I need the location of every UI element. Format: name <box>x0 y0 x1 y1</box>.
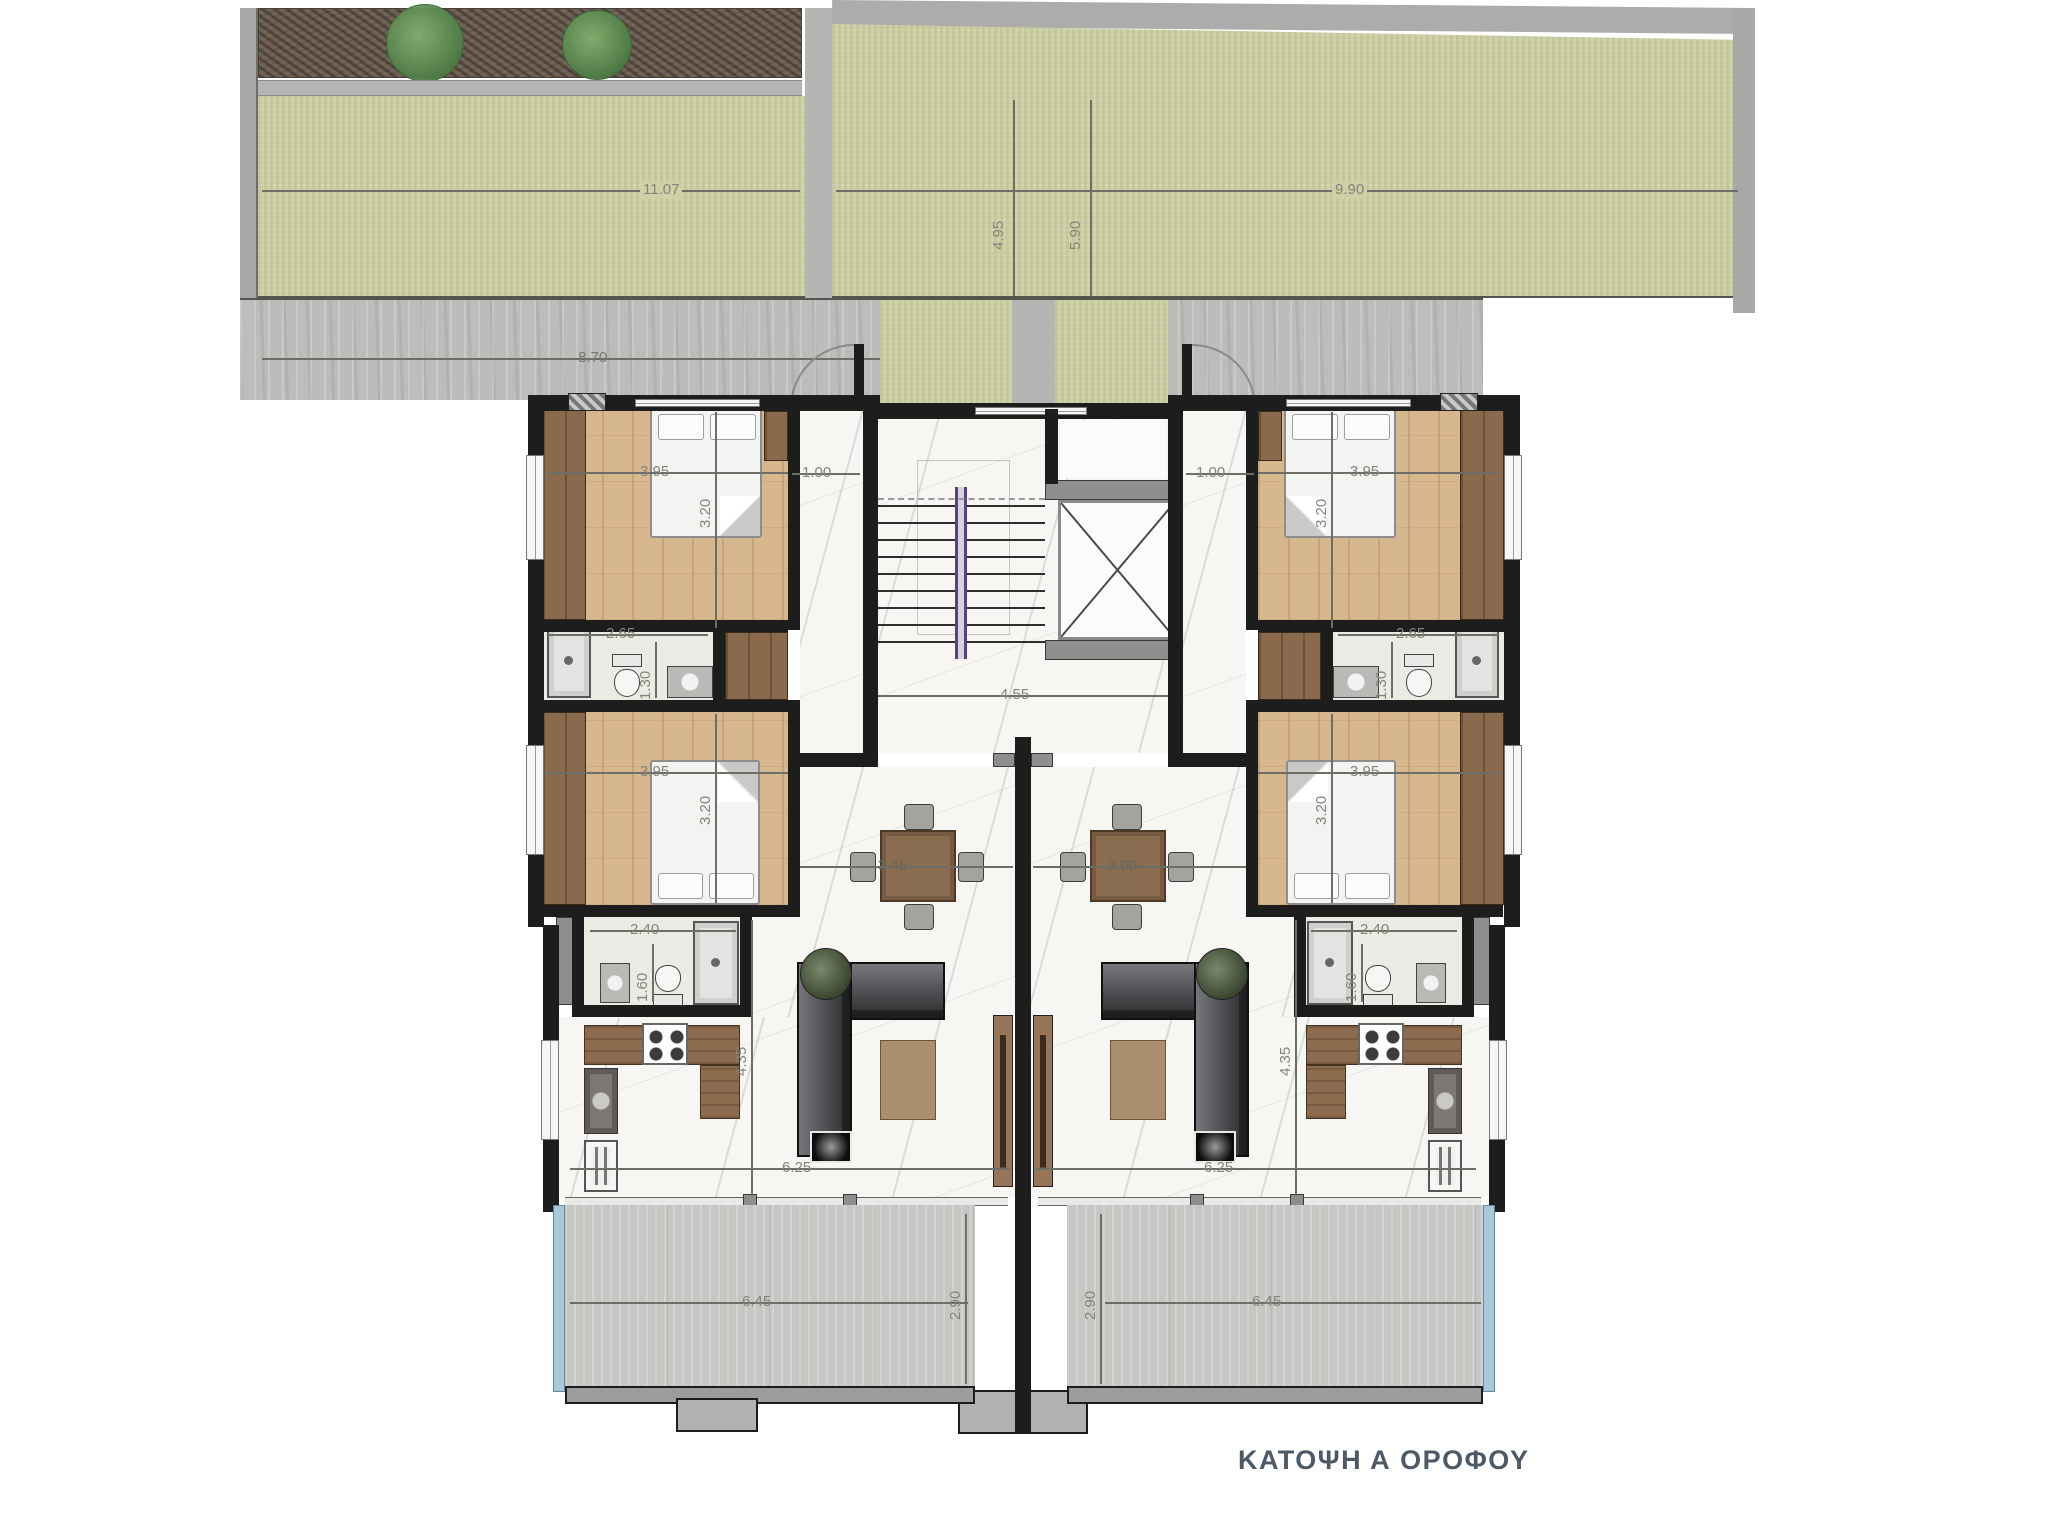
tree-icon <box>386 4 464 82</box>
east-boundary-wall <box>1733 8 1755 313</box>
toilet-bowl <box>1365 965 1391 992</box>
toilet-bowl <box>1406 669 1432 697</box>
dim-living-width-left: 6.25 <box>782 1160 811 1177</box>
dim-bathroom2-width-left: 2.40 <box>630 922 659 939</box>
drawing-title: ΚΑΤΟΨΗ Α ΟΡΟΦΟΥ <box>1238 1445 1530 1476</box>
dim-balcony-depth-left: 2.90 <box>948 1260 965 1320</box>
dim-entry-left: 1.00 <box>802 465 831 482</box>
pillow <box>710 414 756 440</box>
wall <box>788 700 800 917</box>
dim-bedroom1-depth-left: 3.20 <box>698 468 715 528</box>
dim-line-garden-left <box>262 190 800 192</box>
dim-line-garden-right <box>836 190 1738 192</box>
blanket-fold <box>718 762 758 802</box>
chair <box>1112 904 1142 930</box>
garden-right <box>832 18 1748 298</box>
wall <box>1246 700 1258 917</box>
window <box>526 745 544 855</box>
elevator <box>1058 500 1177 640</box>
garden-left <box>258 96 805 298</box>
wall <box>1462 905 1474 1017</box>
wall-flange <box>1031 753 1053 767</box>
wardrobe <box>1460 712 1504 905</box>
blanket-fold <box>720 496 760 536</box>
wall <box>788 753 878 767</box>
dim-line-garden-depth-b <box>1090 100 1092 296</box>
entry-grass-right <box>1055 300 1168 408</box>
dim-line <box>1331 714 1333 903</box>
closet-left <box>725 632 788 700</box>
dim-bedroom2-width-right: 3.95 <box>1350 764 1379 781</box>
dim-bathroom1-width-right: 2.65 <box>1396 626 1425 643</box>
sliding-door <box>1033 1015 1053 1187</box>
dim-line <box>715 412 717 628</box>
wall <box>528 700 800 712</box>
appliance-unit <box>584 1140 618 1192</box>
pillow <box>1345 873 1390 899</box>
window <box>1489 1040 1507 1140</box>
stove <box>1358 1023 1404 1065</box>
kitchen-sink <box>1428 1068 1462 1134</box>
kitchen-sink <box>584 1068 618 1134</box>
sink <box>600 963 630 1003</box>
wall <box>1258 620 1518 632</box>
dim-balcony-depth-right: 2.90 <box>1083 1260 1100 1320</box>
sliding-door <box>993 1015 1013 1187</box>
coffee-table <box>1110 1040 1166 1120</box>
dim-line <box>1036 1168 1476 1170</box>
wall <box>1321 620 1333 712</box>
dim-bathroom1-depth-left: 1.30 <box>638 650 655 700</box>
wardrobe <box>1258 411 1282 461</box>
wall <box>572 905 584 1017</box>
toilet-tank <box>1404 654 1434 667</box>
dim-dining-width-left: 3.45 <box>878 858 907 875</box>
kitchen-counter <box>1306 1065 1346 1119</box>
chair <box>1112 804 1142 830</box>
dim-balcony-width-right: 6.45 <box>1252 1294 1281 1311</box>
wardrobe <box>542 409 586 620</box>
garden-center-path <box>805 8 832 298</box>
toilet-bowl <box>655 965 681 992</box>
chair <box>904 804 934 830</box>
dim-corridor: 4.55 <box>1000 687 1029 704</box>
elevator-wall <box>1045 640 1180 660</box>
dim-entry-right: 1.00 <box>1196 465 1225 482</box>
dim-garden-depth-b: 5.90 <box>1068 195 1085 250</box>
dim-line <box>1105 1302 1481 1304</box>
elevator-wall <box>1045 480 1180 500</box>
floor-plan: 11.07 9.90 4.95 5.90 8.70 <box>0 0 2048 1536</box>
closet-right <box>1258 632 1321 700</box>
plant-icon <box>800 948 852 1000</box>
dim-bathroom2-depth-left: 1.60 <box>635 952 652 1002</box>
glass-railing <box>1483 1205 1495 1392</box>
wall <box>1246 700 1518 712</box>
dim-balcony-width-left: 6.45 <box>742 1294 771 1311</box>
dim-bedroom2-depth-right: 3.20 <box>1314 770 1331 825</box>
wall <box>1246 409 1258 630</box>
dim-living-depth-right: 4.35 <box>1278 1016 1295 1076</box>
wall <box>788 409 800 630</box>
pillow <box>658 873 703 899</box>
dim-line <box>1361 944 1363 1002</box>
sink <box>667 666 713 698</box>
stair-handrail <box>955 487 967 659</box>
wall-hatch <box>1440 393 1478 411</box>
pillow <box>1344 414 1390 440</box>
entry-grass-left <box>880 300 1012 408</box>
wall <box>1168 753 1258 767</box>
window <box>1286 399 1411 407</box>
dim-bedroom2-width-left: 3.95 <box>640 764 669 781</box>
glass-railing <box>553 1205 565 1392</box>
balcony-wall <box>1067 1386 1483 1404</box>
stair-break-line <box>878 498 1045 500</box>
window <box>635 399 760 407</box>
dim-walkway: 8.70 <box>578 350 607 367</box>
tree-icon <box>562 10 632 80</box>
entry-path <box>1012 300 1055 408</box>
party-wall <box>1015 737 1031 1432</box>
corridor-floor-right <box>1183 409 1246 767</box>
dim-bathroom2-depth-right: 1.60 <box>1344 952 1361 1002</box>
tv-stand <box>810 1131 852 1163</box>
dim-dining-width-right: 3.00 <box>1108 858 1137 875</box>
dim-bathroom1-depth-right: 1.30 <box>1374 650 1391 700</box>
wardrobe <box>542 712 586 905</box>
dim-line <box>1100 1214 1102 1384</box>
dim-garden-left: 11.07 <box>640 182 682 199</box>
dim-living-width-right: 6.25 <box>1204 1160 1233 1177</box>
garden-path <box>258 80 802 96</box>
dim-bathroom1-width-left: 2.65 <box>606 626 635 643</box>
shower <box>693 921 739 1005</box>
dim-bedroom1-width-left: 3.95 <box>640 464 669 481</box>
west-boundary-wall <box>240 8 258 310</box>
core-wall <box>863 409 878 753</box>
corridor-floor-left <box>800 409 863 767</box>
dim-line <box>1295 920 1297 1196</box>
balcony-wall <box>565 1386 975 1404</box>
dim-bedroom1-depth-right: 3.20 <box>1314 468 1331 528</box>
elevator-wall <box>1045 409 1058 484</box>
dim-garden-depth-a: 4.95 <box>991 195 1008 250</box>
window <box>526 455 544 560</box>
window <box>1504 745 1522 855</box>
core-wall <box>1168 409 1183 753</box>
coffee-table <box>880 1040 936 1120</box>
wardrobe <box>1460 409 1504 620</box>
dim-line <box>655 642 657 698</box>
appliance-unit <box>1428 1140 1462 1192</box>
hall-floor-left <box>752 917 800 1017</box>
dim-line <box>751 920 753 1196</box>
plant-icon <box>1196 948 1248 1000</box>
bed <box>1286 760 1396 905</box>
dim-line <box>1033 866 1246 868</box>
wall-flange <box>993 753 1015 767</box>
wall <box>1294 1005 1474 1017</box>
dim-garden-right: 9.90 <box>1332 182 1367 199</box>
dim-bedroom2-depth-left: 3.20 <box>698 770 715 825</box>
chair <box>904 904 934 930</box>
dim-line <box>965 1214 967 1384</box>
dim-line <box>590 930 736 932</box>
wall <box>528 620 788 632</box>
dim-living-depth-left: 4.35 <box>734 1016 751 1076</box>
dim-line <box>652 944 654 1002</box>
dim-line <box>715 714 717 903</box>
window <box>541 1040 559 1140</box>
dim-bedroom1-width-right: 3.95 <box>1350 464 1379 481</box>
dim-bathroom2-width-right: 2.40 <box>1360 922 1389 939</box>
toilet <box>1404 654 1434 698</box>
toilet <box>1363 965 1393 1007</box>
wall-hatch <box>568 393 606 411</box>
pillow <box>658 414 704 440</box>
elevator-lobby <box>1060 420 1166 478</box>
dim-line <box>1331 412 1333 628</box>
dim-line-garden-depth-a <box>1013 100 1015 296</box>
stove <box>642 1023 688 1065</box>
dim-line-walkway <box>262 358 880 360</box>
balcony-footing <box>676 1398 758 1432</box>
wall <box>713 620 725 712</box>
hall-floor-right <box>1246 917 1294 1017</box>
wardrobe <box>764 411 788 461</box>
toilet <box>653 965 683 1007</box>
window <box>1504 455 1522 560</box>
dim-line <box>1391 642 1393 698</box>
sink <box>1416 963 1446 1003</box>
window <box>975 407 1087 415</box>
soil-bed <box>258 8 802 78</box>
wall <box>572 1005 752 1017</box>
